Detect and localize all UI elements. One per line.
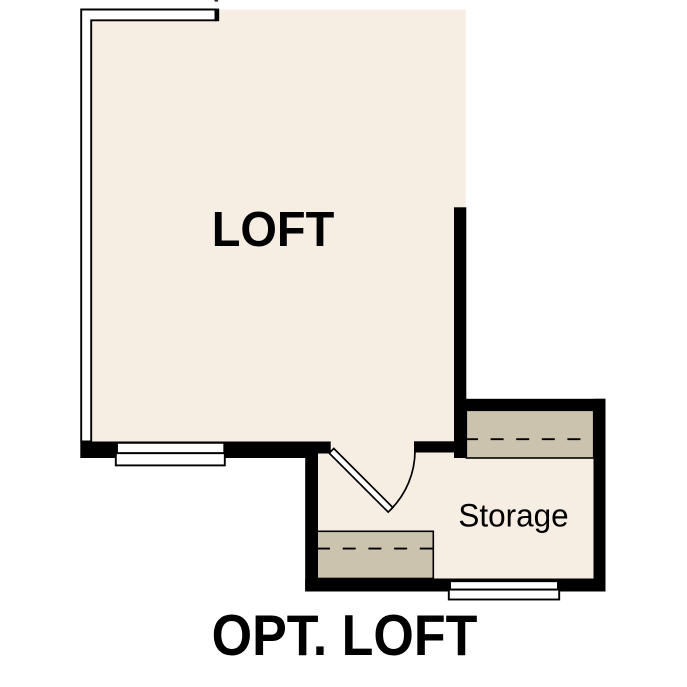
svg-text:OPT. LOFT: OPT. LOFT [212,604,478,668]
svg-text:LOFT: LOFT [212,202,335,257]
svg-text:Storage: Storage [458,497,568,534]
